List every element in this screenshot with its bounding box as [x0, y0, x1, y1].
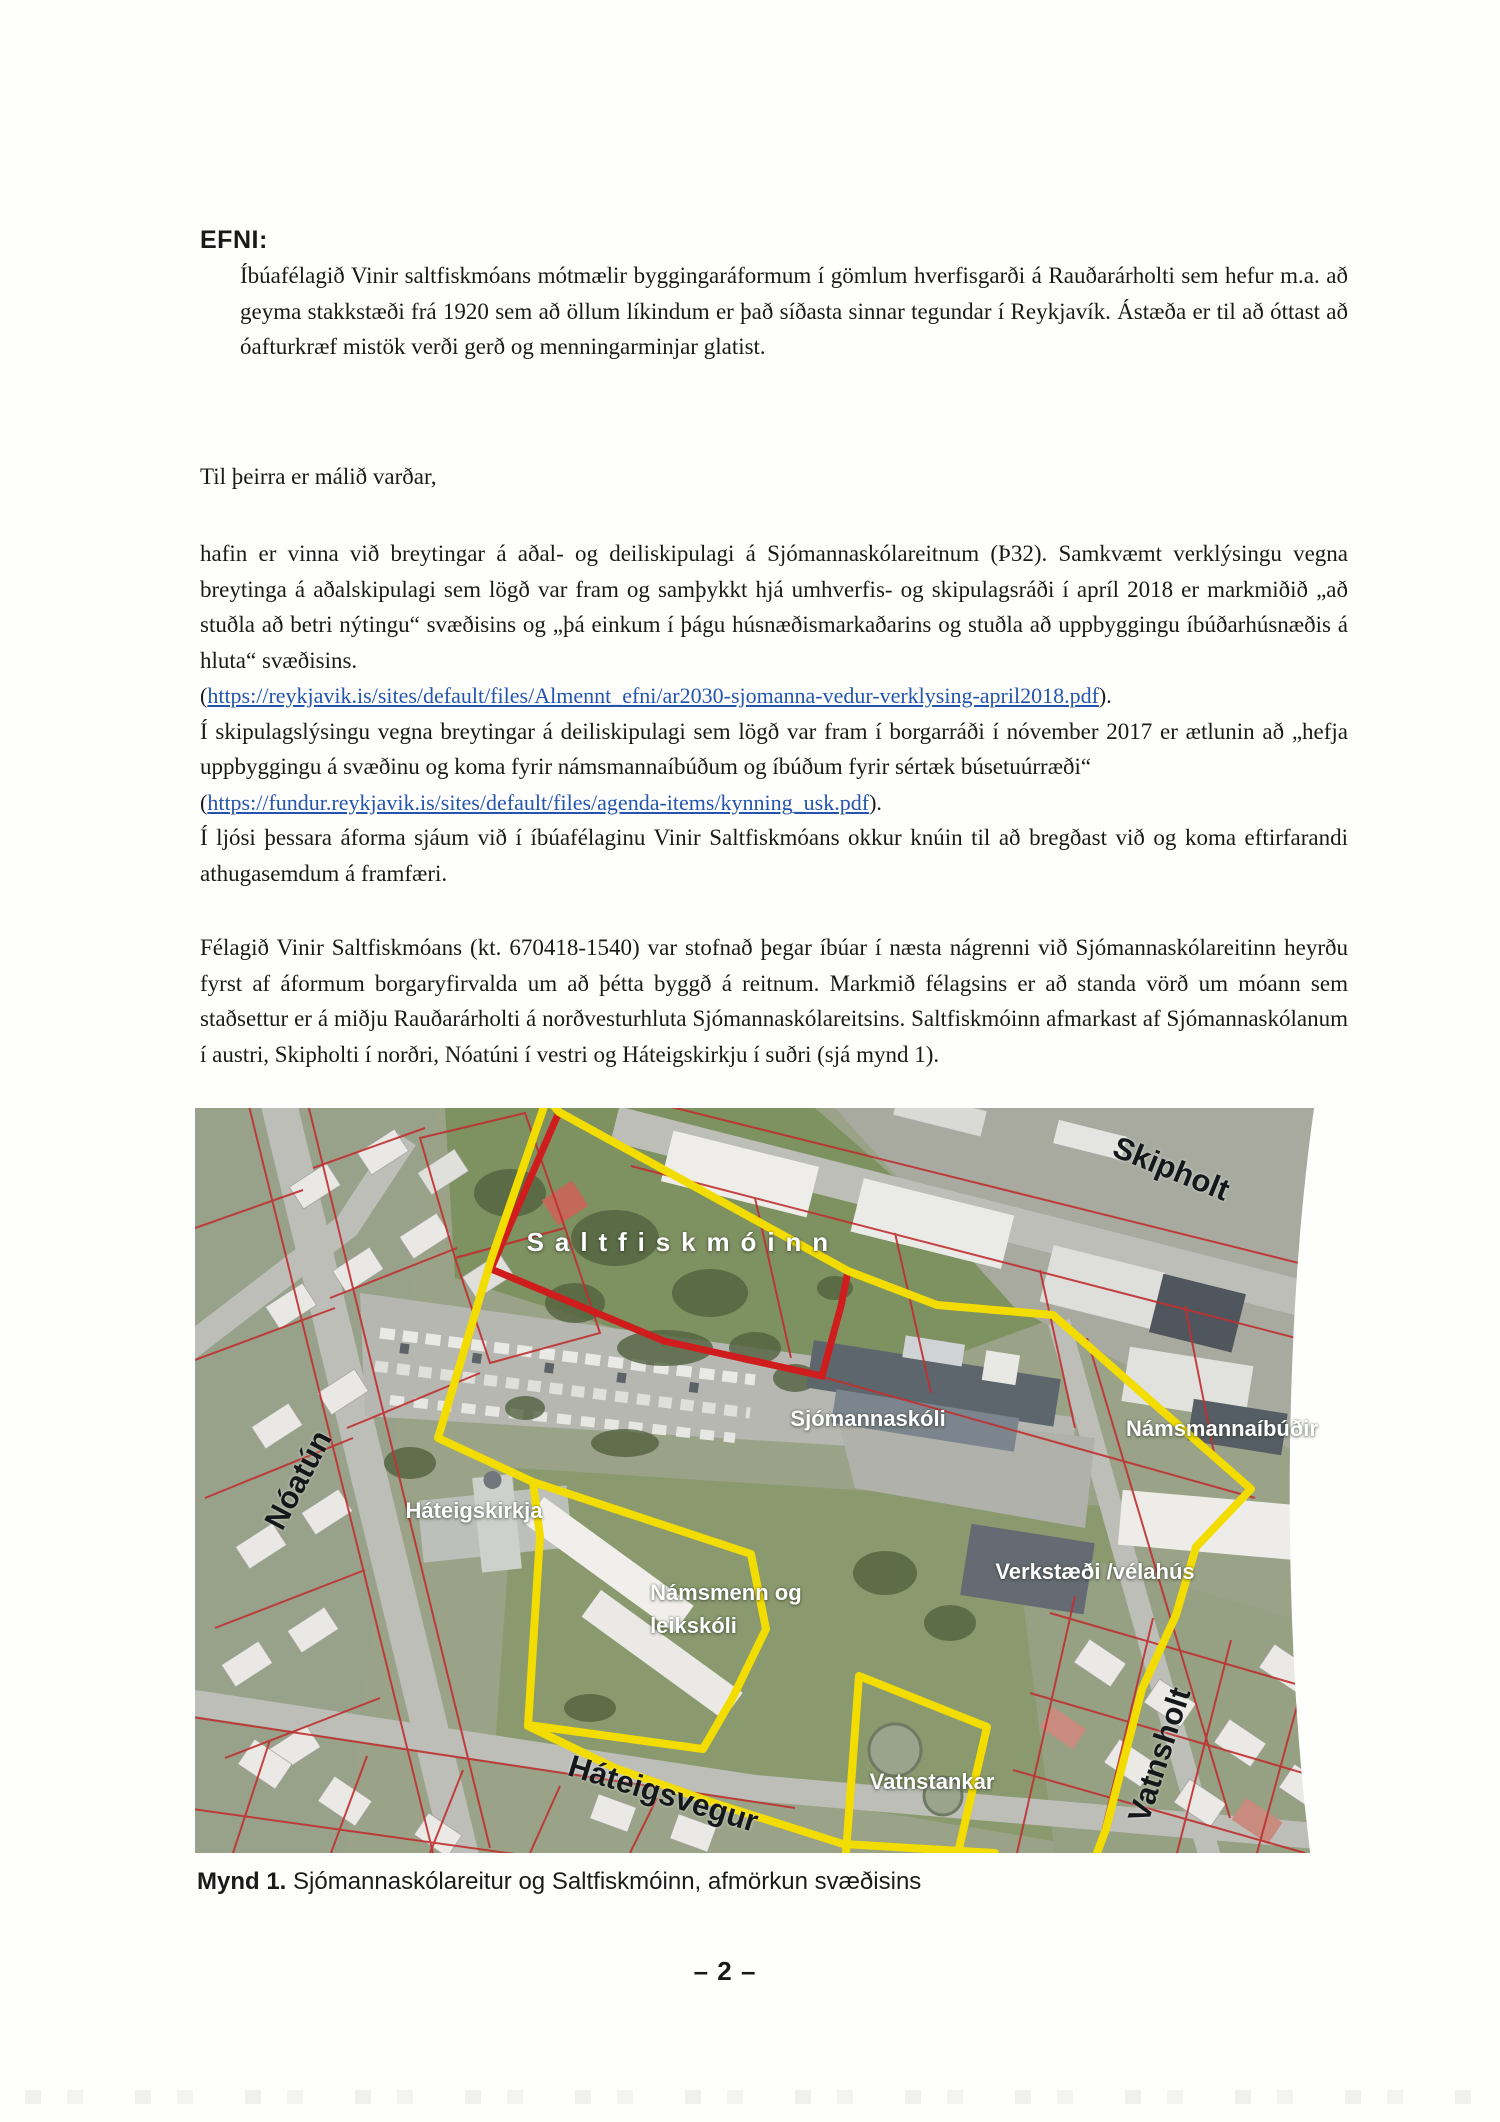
label-saltfiskmoinn: Saltfiskmóinn — [527, 1227, 839, 1258]
page-number: – 2 – — [625, 1956, 825, 1987]
aerial-map-figure: Saltfiskmóinn Sjómannaskóli Námsmannaíbú… — [195, 1108, 1327, 1853]
paragraph-deiliskipulag: Í skipulagslýsingu vegna breytingar á de… — [200, 714, 1348, 785]
label-namsmannaibudir: Námsmannaíbúðir — [1126, 1416, 1318, 1442]
label-hateigskirkja: Háteigskirkja — [406, 1498, 543, 1524]
link-line-kynning: (https://fundur.reykjavik.is/sites/defau… — [200, 785, 1348, 821]
kynning-link[interactable]: https://fundur.reykjavik.is/sites/defaul… — [207, 790, 869, 815]
label-verkstaedi-velahus: Verkstæði /vélahús — [995, 1559, 1194, 1585]
paragraph-plans: hafin er vinna við breytingar á aðal- og… — [200, 536, 1348, 678]
paragraph-response: Í ljósi þessara áforma sjáum við í íbúaf… — [200, 820, 1348, 891]
figure-caption-text: Sjómannaskólareitur og Saltfiskmóinn, af… — [293, 1868, 921, 1895]
body-text-block: hafin er vinna við breytingar á aðal- og… — [200, 536, 1348, 891]
label-vatnstankar: Vatnstankar — [870, 1769, 995, 1795]
verklysing-link[interactable]: https://reykjavik.is/sites/default/files… — [207, 683, 1099, 708]
link-suffix: ). — [1099, 683, 1112, 708]
label-line: Námsmenn og — [650, 1580, 802, 1605]
subject-paragraph: Íbúafélagið Vinir saltfiskmóans mótmælir… — [240, 258, 1348, 365]
label-line: leikskóli — [650, 1613, 737, 1638]
figure-caption-label: Mynd 1. — [197, 1868, 286, 1895]
figure-caption: Mynd 1. Sjómannaskólareitur og Saltfiskm… — [197, 1868, 921, 1896]
label-namsmenn-og-leikskoli: Námsmenn ogleikskóli — [650, 1576, 840, 1642]
label-sjomannaskoli: Sjómannaskóli — [790, 1406, 945, 1432]
scan-noise-strip — [25, 2090, 1475, 2104]
link-line-verklysing: (https://reykjavik.is/sites/default/file… — [200, 678, 1348, 714]
paragraph-felagid: Félagið Vinir Saltfiskmóans (kt. 670418-… — [200, 930, 1348, 1072]
link-suffix: ). — [869, 790, 882, 815]
subject-label: EFNI: — [200, 226, 268, 255]
salutation: Til þeirra er málið varðar, — [200, 464, 436, 490]
